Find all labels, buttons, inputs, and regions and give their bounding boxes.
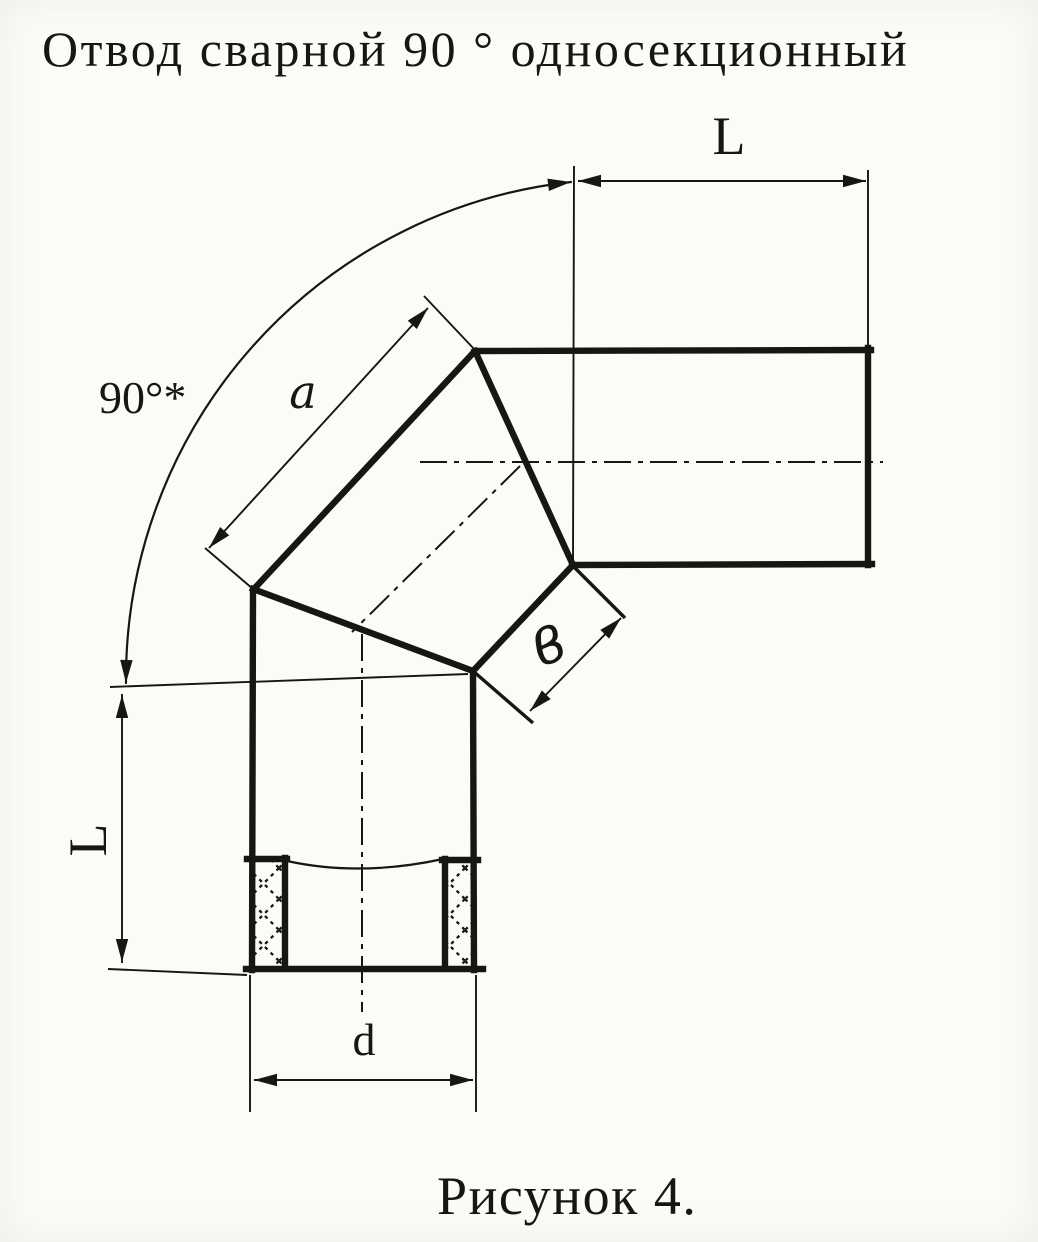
arrow-L-top-right [843, 175, 866, 187]
figure-caption: Рисунок 4. [437, 1166, 697, 1226]
arrowheads [116, 175, 866, 1086]
label-width-b: в [520, 597, 573, 683]
centerlines [352, 462, 883, 1012]
arrow-L-top-left [578, 175, 601, 187]
angle-arc-90 [126, 182, 571, 683]
extension-lines [108, 166, 868, 1112]
dimension-labels: L L 90°* a в d [58, 106, 746, 1065]
label-bend-angle: 90°* [99, 372, 186, 423]
label-diameter-d: d [353, 1014, 376, 1065]
drawing-sheet: Отвод сварной 90 ° односекционный [0, 0, 1038, 1242]
drawing-title: Отвод сварной 90 ° односекционный [42, 21, 909, 77]
ext-line-b-upper [573, 566, 625, 618]
horizontal-pipe-bottom-edge [572, 564, 872, 565]
ext-line-a-upper [424, 296, 475, 350]
ext-line-b-lower [473, 671, 533, 723]
label-length-top: L [713, 106, 746, 166]
dimension-lines [122, 181, 866, 1080]
ext-line-joint-vertical [573, 166, 574, 563]
hatch-wall-left [252, 861, 283, 966]
middle-section-centerline [352, 466, 520, 632]
label-length-left: L [58, 824, 118, 857]
label-section-a: a [289, 365, 316, 419]
hatch-wall-right [447, 861, 474, 966]
dim-line-a [209, 308, 428, 548]
arrow-L-left-top [116, 695, 128, 718]
ext-line-a-lower [205, 548, 253, 589]
arrow-d-left [254, 1074, 277, 1086]
arrow-d-right [450, 1074, 473, 1086]
break-line [287, 859, 443, 869]
elbow-technical-drawing: Отвод сварной 90 ° односекционный [0, 0, 1038, 1242]
weld-seam-upper [475, 351, 573, 565]
arrow-arc-bottom [120, 660, 133, 683]
ext-line-bottom-horizontal [108, 969, 247, 975]
ext-line-inner-corner-horizontal [110, 674, 468, 687]
arrow-L-left-bottom [116, 939, 128, 962]
